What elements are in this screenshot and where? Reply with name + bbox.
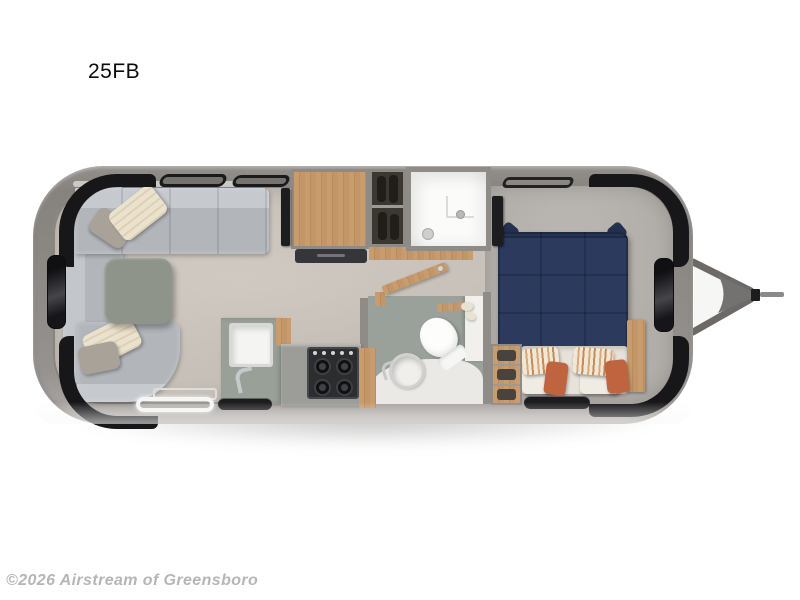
bathroom-wall: [483, 292, 491, 404]
trailer-body: [33, 166, 693, 424]
hitch-coupler: [751, 289, 760, 301]
wardrobe-shelf: [493, 384, 520, 386]
wardrobe-rail: [372, 205, 403, 208]
hanging-clothes: [390, 214, 399, 240]
stored-item: [497, 350, 516, 361]
foot-wardrobe: [491, 344, 522, 405]
slot-window: [158, 174, 229, 187]
slot-window: [231, 175, 291, 187]
stove-burner: [314, 379, 331, 396]
hanging-clothes: [378, 212, 387, 240]
kitchen-sink: [229, 323, 273, 367]
stored-item: [497, 369, 516, 380]
stove-burner: [336, 379, 353, 396]
hanging-clothes: [389, 175, 398, 203]
floorplan-page: 25FB: [0, 0, 800, 600]
galley-cabinet: [291, 169, 369, 249]
wardrobe-shelf: [493, 364, 520, 366]
shower-head: [422, 228, 434, 240]
a-frame-hitch: [688, 252, 788, 342]
plan-title: 25FB: [88, 60, 140, 84]
cabinet-end-panel: [359, 348, 376, 408]
shower-drain: [456, 210, 465, 219]
hitch-tongue-bar: [760, 292, 784, 297]
stove-burner: [336, 358, 353, 375]
bedroom-tv: [492, 196, 503, 246]
side-window-left: [47, 255, 66, 329]
hanging-wardrobe: [369, 169, 406, 247]
side-window-right: [654, 258, 674, 332]
hanging-clothes: [377, 176, 386, 202]
counter-wood-corner: [276, 318, 291, 346]
bedroom-window: [524, 396, 590, 409]
corner-window-bottom-right: [589, 336, 689, 417]
watermark: ©2026 Airstream of Greensboro: [6, 572, 258, 590]
stove-burner: [314, 358, 331, 375]
bathroom-door-jamb: [375, 292, 385, 306]
bottom-window: [218, 398, 272, 410]
stored-item: [497, 389, 516, 400]
entry-door-step: [136, 397, 214, 412]
shower-stall: [406, 167, 491, 251]
galley-drawer: [295, 249, 367, 263]
stove-knobs: [313, 351, 353, 356]
towel: [461, 302, 473, 311]
roof-vent: [501, 177, 575, 188]
lounge-tv: [281, 188, 290, 246]
bed-pillow-accent: [543, 361, 569, 396]
hitch-drawing: [688, 252, 788, 342]
gas-stove: [307, 347, 359, 399]
dinette-table: [104, 258, 172, 324]
